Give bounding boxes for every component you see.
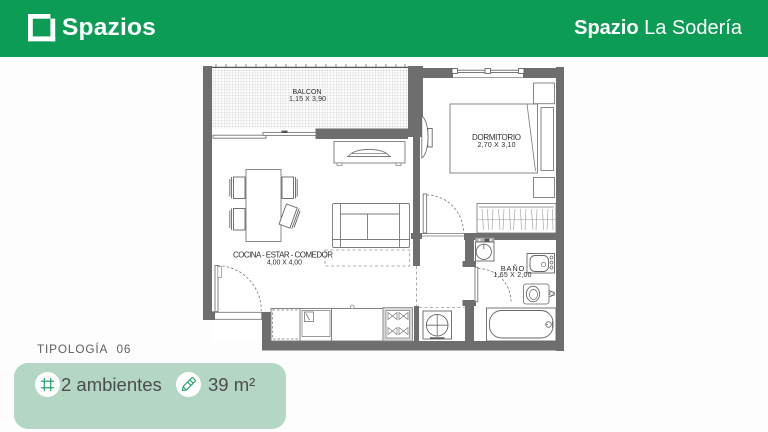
svg-text:1,65 X 2,00: 1,65 X 2,00: [494, 272, 532, 279]
svg-text:1,15 X 3,90: 1,15 X 3,90: [289, 96, 326, 103]
svg-text:4,00 X 4,00: 4,00 X 4,00: [267, 260, 302, 267]
svg-text:2,70 X 3,10: 2,70 X 3,10: [478, 142, 516, 149]
svg-text:DORMITORIO: DORMITORIO: [472, 133, 521, 142]
svg-text:COCINA - ESTAR - COMEDOR: COCINA - ESTAR - COMEDOR: [233, 251, 333, 260]
